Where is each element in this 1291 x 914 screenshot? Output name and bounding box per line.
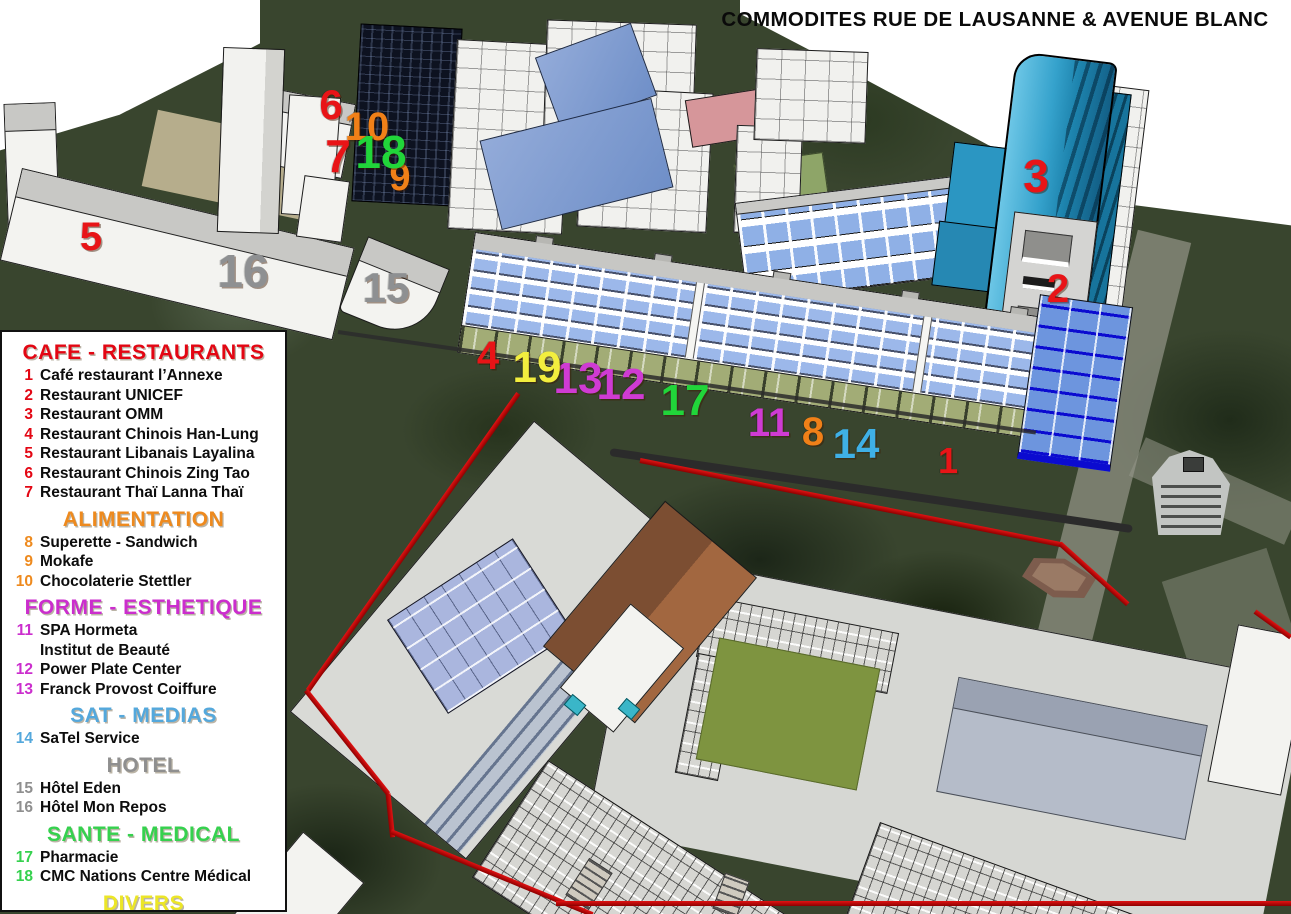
legend-item-1: 1Café restaurant l’Annexe [7,366,280,386]
legend-item-label: Franck Provost Coiffure [40,680,217,700]
legend-panel: CAFE - RESTAURANTS1Café restaurant l’Ann… [0,330,287,912]
legend-item-14: 14SaTel Service [7,729,280,749]
legend-item-10: 10Chocolaterie Stettler [7,572,280,592]
legend-item-number: 15 [7,779,33,799]
legend-item-number: 16 [7,798,33,818]
legend-item-number: 14 [7,729,33,749]
legend-item-number: 17 [7,848,33,868]
legend-item-label: Hôtel Mon Repos [40,798,167,818]
legend-item-13: 13Franck Provost Coiffure [7,680,280,700]
legend-item-number: 6 [7,464,33,484]
map-marker-15: 15 [363,267,410,309]
legend-item-number: 18 [7,867,33,887]
map-marker-8: 8 [802,412,824,452]
map-marker-5: 5 [80,217,102,257]
legend-item-number: 9 [7,552,33,572]
map-marker-18: 18 [355,129,406,175]
legend-item-9: 9Mokafe [7,552,280,572]
map-marker-6: 6 [319,84,342,126]
legend-item-label: Restaurant OMM [40,405,163,425]
legend-item-number: 11 [7,621,33,641]
legend-item-label: Hôtel Eden [40,779,121,799]
map-marker-12: 12 [597,363,646,407]
map-marker-19: 19 [513,346,562,390]
legend-item-2: 2Restaurant UNICEF [7,386,280,406]
legend-item-number: 3 [7,405,33,425]
map-marker-4: 4 [477,336,499,376]
legend-item-number: 5 [7,444,33,464]
legend-item-label: Restaurant UNICEF [40,386,183,406]
legend-item-label: CMC Nations Centre Médical [40,867,251,887]
legend-item-number: 8 [7,533,33,553]
legend-header-cafe-restaurants: CAFE - RESTAURANTS [7,340,280,365]
legend-header-sat-medias: SAT - MEDIAS [7,703,280,728]
legend-item-label: SaTel Service [40,729,140,749]
legend-item-7: 7Restaurant Thaï Lanna Thaï [7,483,280,503]
map-marker-14: 14 [833,423,880,465]
legend-item-6: 6Restaurant Chinois Zing Tao [7,464,280,484]
legend-header-sante-medical: SANTE - MEDICAL [7,822,280,847]
legend-item-label: Power Plate Center [40,660,181,680]
map-canvas: 12345678910111213141516171819 CAFE - RES… [0,0,1291,914]
legend-header-forme-esthetique: FORME - ESTHETIQUE [7,595,280,620]
legend-item-number: 12 [7,660,33,680]
legend-header-alimentation: ALIMENTATION [7,507,280,532]
map-marker-2: 2 [1047,269,1069,309]
legend-header-hotel: HOTEL [7,753,280,778]
legend-item-12: 12Power Plate Center [7,660,280,680]
legend-item-label: Restaurant Chinois Han-Lung [40,425,259,445]
page-title: COMMODITES RUE DE LAUSANNE & AVENUE BLAN… [706,8,1284,32]
legend-item-8: 8Superette - Sandwich [7,533,280,553]
map-marker-17: 17 [661,379,710,423]
legend-item-label: SPA Hormeta [40,621,137,641]
legend-item-17: 17Pharmacie [7,848,280,868]
legend-item-11: 11SPA Hormeta [7,621,280,641]
legend-item-label: Restaurant Thaï Lanna Thaï [40,483,243,503]
legend-item-number: 10 [7,572,33,592]
legend-item-number: 13 [7,680,33,700]
legend-item-label: Restaurant Libanais Layalina [40,444,255,464]
legend-item-label: Pharmacie [40,848,118,868]
legend-item-number: 1 [7,366,33,386]
legend-item-label: Café restaurant l’Annexe [40,366,223,386]
legend-item-15: 15Hôtel Eden [7,779,280,799]
legend-item-label: Restaurant Chinois Zing Tao [40,464,250,484]
legend-item-5: 5Restaurant Libanais Layalina [7,444,280,464]
legend-item-label: Superette - Sandwich [40,533,198,553]
legend-header-divers: DIVERS [7,891,280,913]
map-marker-16: 16 [217,248,268,294]
legend-item-number: 4 [7,425,33,445]
legend-item-18: 18CMC Nations Centre Médical [7,867,280,887]
legend-item-3: 3Restaurant OMM [7,405,280,425]
legend-item-4: 4Restaurant Chinois Han-Lung [7,425,280,445]
legend-item-label-line2: Institut de Beauté [40,641,280,661]
legend-item-16: 16Hôtel Mon Repos [7,798,280,818]
legend-item-label: Chocolaterie Stettler [40,572,192,592]
map-marker-11: 11 [748,403,790,443]
map-marker-3: 3 [1023,153,1049,199]
legend-item-number: 2 [7,386,33,406]
map-marker-1: 1 [938,443,958,479]
legend-item-number: 7 [7,483,33,503]
legend-item-label: Mokafe [40,552,93,572]
